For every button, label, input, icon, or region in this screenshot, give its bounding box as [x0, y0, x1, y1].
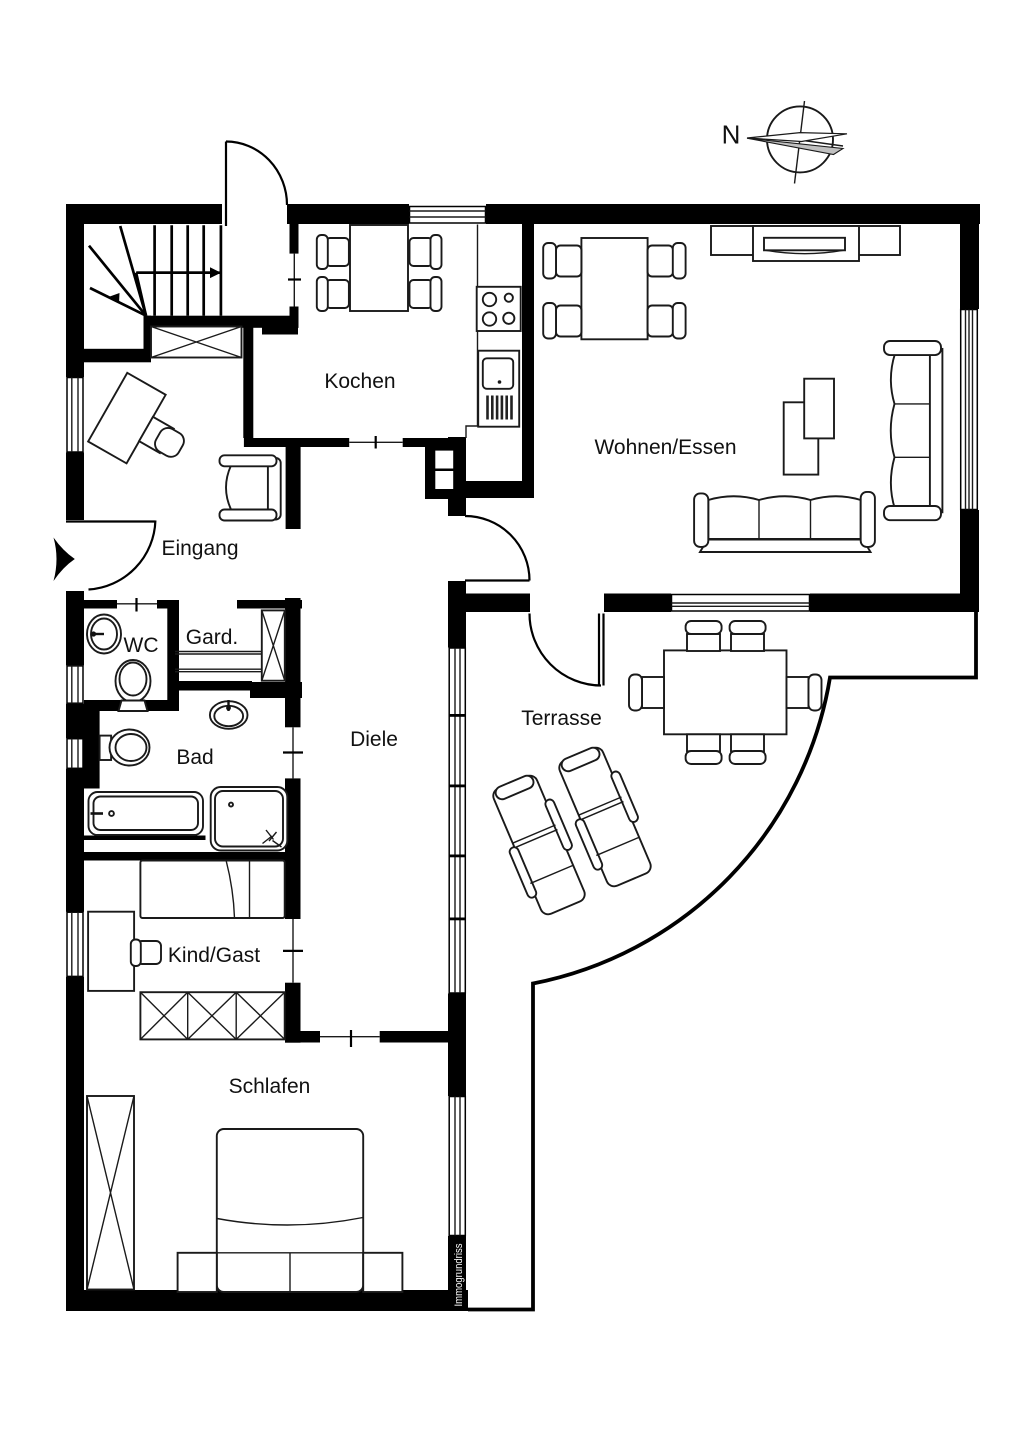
svg-text:Kochen: Kochen	[324, 370, 395, 393]
svg-text:Gard.: Gard.	[186, 626, 239, 649]
svg-text:Terrasse: Terrasse	[521, 707, 602, 730]
svg-text:N: N	[722, 120, 741, 150]
svg-text:Schlafen: Schlafen	[229, 1075, 311, 1098]
svg-text:Wohnen/Essen: Wohnen/Essen	[594, 436, 736, 459]
svg-text:Eingang: Eingang	[161, 537, 238, 560]
svg-text:Bad: Bad	[176, 746, 213, 769]
svg-text:Immogrundriss: Immogrundriss	[453, 1243, 465, 1306]
svg-text:Kind/Gast: Kind/Gast	[168, 944, 260, 967]
svg-text:WC: WC	[124, 634, 159, 657]
svg-text:Diele: Diele	[350, 728, 398, 751]
